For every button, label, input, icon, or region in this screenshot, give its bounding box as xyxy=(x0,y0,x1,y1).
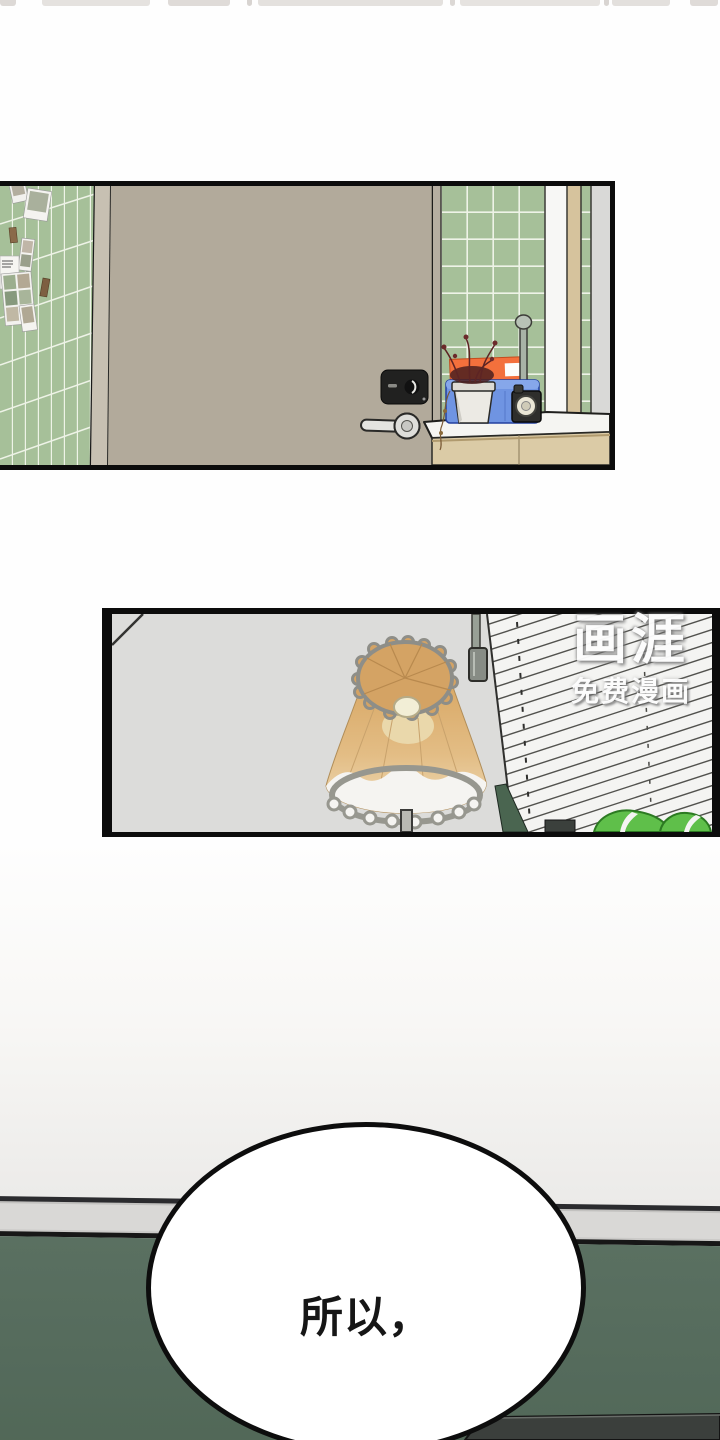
door-lock xyxy=(381,370,428,404)
panel-hallway-door xyxy=(0,181,615,470)
window-sill-dark xyxy=(545,820,575,832)
webtoon-page: 画涯 免费漫画 所以， xyxy=(0,0,720,1440)
lamp-pole xyxy=(401,810,412,832)
cabinet xyxy=(432,432,610,465)
top-edge-artifact xyxy=(0,0,720,8)
speech-bubble-text: 所以， xyxy=(146,1283,586,1345)
plant-pot xyxy=(452,382,495,423)
door-frame xyxy=(91,186,111,465)
watermark-tagline: 免费漫画 xyxy=(556,670,706,710)
watermark-logo: 画涯 xyxy=(558,610,704,669)
tape-reel-device xyxy=(512,385,541,422)
speech-bubble xyxy=(146,1122,586,1440)
hallway-door-scene xyxy=(0,186,610,465)
